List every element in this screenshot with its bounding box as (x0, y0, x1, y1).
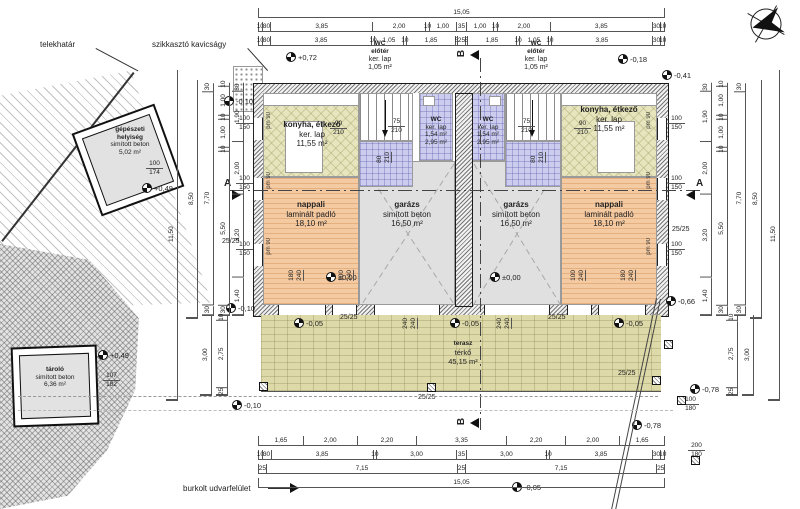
level-marker: -0,05 (614, 318, 643, 328)
door-label-tarolo: 107182 (103, 372, 120, 388)
dim-segment: 10 (660, 22, 664, 32)
dim-segment: 1,65 (258, 436, 303, 446)
dim-segment: 2,75 (726, 321, 738, 388)
level-marker: -0,78 (632, 420, 661, 430)
dim-segment: 15,05 (258, 8, 664, 18)
window-sill-label: pm 90 (266, 112, 272, 129)
kitchen-counter-left (263, 93, 359, 106)
wc-fixture-right (489, 96, 501, 106)
dim-chain-left-inner: 301,902,003,201,40 (232, 83, 244, 316)
dim-segment: 1,90 (700, 92, 712, 142)
window-opening (253, 178, 263, 200)
door-size-label: 75210 (518, 118, 535, 134)
dim-segment: 3,85 (550, 22, 652, 32)
dim-segment: 1,40 (700, 278, 712, 315)
dim-chain-bottom-total: 15,05 (258, 478, 665, 488)
dim-chain-left-mid: 101,00101,00105,5030 (218, 83, 230, 316)
dim-chain-right-inner: 301,902,003,201,40 (700, 83, 712, 316)
label-burkolt-udvarfelulet: burkolt udvarfelület (183, 484, 251, 493)
level-symbol-icon (142, 183, 152, 193)
dim-segment: 3,85 (551, 36, 652, 46)
leader-line (268, 488, 290, 489)
dim-segment: 3,85 (270, 36, 371, 46)
dim-segment: 30 (202, 83, 214, 92)
dim-segment: 3,00 (466, 450, 546, 460)
dim-segment: 1,00 (429, 22, 456, 32)
hall-right (505, 141, 561, 187)
window-size-label: 100150 (668, 175, 685, 191)
dim-chain-left-850: 8,50 (186, 80, 198, 319)
dim-segment: 3,85 (270, 22, 372, 32)
door-label-gepeszeti: 100174 (146, 160, 163, 176)
dim-segment: 11,50 (166, 70, 178, 400)
level-marker: -0,66 (666, 296, 695, 306)
section-line-b (480, 58, 481, 430)
section-arrow-icon (470, 418, 479, 428)
terrace-post (259, 382, 268, 391)
garage-rear-opening (484, 305, 550, 315)
fence-post (691, 456, 700, 465)
level-marker: -0,41 (662, 70, 691, 80)
dim-chain-left-1150: 11,50 (166, 70, 178, 401)
dim-segment: 8,50 (750, 80, 762, 318)
dim-chain-right-1150: 11,50 (768, 70, 780, 401)
door-size-label: 90210 (574, 120, 591, 136)
level-symbol-icon (98, 350, 108, 360)
room-label-wc-right: WCker. lap 1,54 m²2,95 m² (471, 116, 505, 146)
fence-post (664, 340, 673, 349)
window-size-label: 100150 (668, 241, 685, 257)
dim-chain-top-row2: 10303,852,00101,00351,00102,003,853010 (258, 22, 665, 32)
terrace-door-label: 100240 (338, 270, 354, 281)
dim-chain-right-770: 307,7030 (734, 83, 746, 316)
floor-plan-sheet: OC OTTHON CENTRUM gépészetihelyiség simí… (0, 0, 800, 509)
room-label-nappali-right: nappalilaminált padló18,10 m² (564, 200, 654, 229)
window-opening (253, 244, 263, 266)
section-marker-b-bottom: B (456, 418, 467, 425)
dim-segment: 3,00 (742, 315, 754, 395)
door-size-label: 75210 (388, 118, 405, 134)
terrace-post (427, 383, 436, 392)
dim-segment: 3,00 (376, 450, 456, 460)
dim-chain-bottom-row1: 1,652,002,203,352,202,001,65 (258, 436, 665, 446)
dim-segment: 30 (202, 306, 214, 315)
dim-segment: 10 (216, 315, 228, 321)
dim-segment: 2,00 (232, 142, 244, 195)
level-symbol-icon (662, 70, 672, 80)
column-size-label: 25/25 (548, 314, 566, 321)
window-size-label: 100150 (668, 115, 685, 131)
leader-line (96, 48, 139, 71)
dim-segment: 7,70 (202, 92, 214, 305)
garage-rear-opening (374, 305, 440, 315)
dim-chain-bottom-row2: 10303,85103,00353,00103,853010 (258, 450, 665, 460)
dim-segment: 1,00 (716, 87, 728, 116)
garage-door-label: 240240 (402, 318, 418, 329)
dim-segment: 10 (660, 36, 664, 46)
terrace-door-label: 100240 (570, 270, 586, 281)
dim-segment: 35 (456, 22, 466, 32)
dim-segment: 7,15 (266, 464, 458, 474)
living-room-left (263, 177, 359, 305)
dim-segment: 3,85 (549, 450, 651, 460)
dim-chain-top-row3: 10303,85101,05101,8552551,85101,05103,85… (258, 36, 665, 46)
window-sill-label: pm 90 (266, 238, 272, 255)
dim-segment: 2,20 (357, 436, 416, 446)
level-marker: -0,78 (690, 384, 719, 394)
fence-post (677, 396, 686, 405)
dim-segment: 1,05 (374, 36, 402, 46)
level-marker: +0,72 (286, 52, 317, 62)
dim-chain-top-total: 15,05 (258, 8, 665, 18)
dim-segment: 3,20 (232, 194, 244, 278)
dim-segment: 1,65 (619, 436, 664, 446)
level-marker: -0,18 (618, 54, 647, 64)
dim-chain-left-bottom-inner: 102,7525 (216, 315, 228, 396)
section-arrow-icon (470, 50, 479, 60)
window-opening (657, 178, 667, 200)
window-opening (253, 118, 263, 140)
level-symbol-icon (294, 318, 304, 328)
level-symbol-icon (690, 384, 700, 394)
level-marker: ±0,00 (490, 272, 521, 282)
column-size-label: 25/25 (618, 370, 636, 377)
room-label-garazs-left: garázssimított beton16,50 m² (362, 200, 452, 229)
door-size-label: 80210 (530, 152, 546, 163)
hall-left (359, 141, 413, 187)
dim-segment: 7,70 (734, 92, 746, 305)
room-label-garazs-right: garázssimított beton16,50 m² (472, 200, 560, 229)
dim-segment: 2,00 (372, 22, 425, 32)
dim-segment: 3,35 (416, 436, 506, 446)
dim-segment: 3,00 (200, 315, 212, 395)
dim-segment: 25 (457, 464, 465, 474)
wc-fixture-left (423, 96, 435, 106)
level-marker: -0,05 (294, 318, 323, 328)
door-size-label: 80210 (376, 152, 392, 163)
yard-dashed-line (18, 396, 658, 397)
dim-segment: 30 (734, 83, 746, 92)
dim-segment: 30 (700, 83, 712, 92)
dim-segment: 30 (734, 306, 746, 315)
dim-segment: 3,85 (271, 450, 373, 460)
column-size-label: 25/25 (340, 314, 358, 321)
dim-segment: 15,05 (258, 478, 664, 488)
garage-door-label: 240240 (496, 318, 512, 329)
room-label-nappali-left: nappalilaminált padló18,10 m² (266, 200, 356, 229)
label-telekhatar: telekhatár (40, 40, 75, 49)
level-symbol-icon (490, 272, 500, 282)
dim-chain-right-850: 8,50 (750, 80, 762, 319)
dim-segment: 1,40 (232, 278, 244, 315)
dim-segment: 2,00 (497, 22, 550, 32)
room-label-wc-left: WCker. lap 1,54 m²2,95 m² (419, 116, 453, 146)
dim-segment: 2,00 (303, 436, 357, 446)
dim-segment: 1,85 (467, 36, 516, 46)
level-symbol-icon (232, 400, 242, 410)
dim-segment: 25 (258, 464, 266, 474)
window-opening (657, 118, 667, 140)
dim-segment: 11,50 (768, 70, 780, 400)
dim-segment: 10 (726, 315, 738, 321)
window-sill-label: pm 90 (266, 172, 272, 189)
dim-segment: 1,00 (466, 22, 493, 32)
dim-segment: 2,00 (700, 142, 712, 195)
dim-segment: 10 (660, 450, 664, 460)
dim-segment: 3,20 (700, 194, 712, 278)
dim-segment: 25 (656, 464, 664, 474)
living-room-right (561, 177, 657, 305)
yard-dashed-line (18, 410, 673, 411)
dim-segment: 30 (262, 450, 271, 460)
dim-segment: 25 (726, 388, 738, 395)
window-sill-label: pm 90 (646, 172, 652, 189)
section-arrow-icon (686, 190, 695, 200)
dim-segment: 1,90 (232, 92, 244, 142)
dim-chain-left-770: 307,7030 (202, 83, 214, 316)
dim-segment: 1,00 (218, 87, 230, 116)
dim-segment: 1,00 (716, 119, 728, 148)
level-marker: +0,49 (98, 350, 129, 360)
level-symbol-icon (286, 52, 296, 62)
section-marker-b-top: B (456, 50, 467, 57)
terrace-post (652, 376, 661, 385)
dim-segment: 2,00 (565, 436, 619, 446)
dim-segment: 25 (216, 388, 228, 395)
dim-segment: 1,05 (519, 36, 547, 46)
dim-segment: 2,20 (506, 436, 565, 446)
window-sill-label: pm 90 (646, 238, 652, 255)
level-symbol-icon (614, 318, 624, 328)
dim-segment: 35 (456, 450, 466, 460)
dim-segment: 7,15 (465, 464, 657, 474)
level-symbol-icon (450, 318, 460, 328)
level-marker: -0,05 (450, 318, 479, 328)
door-size-label: 90210 (330, 120, 347, 136)
level-marker: -0,10 (232, 400, 261, 410)
dim-chain-right-bottom-outer: 3,00 (742, 315, 754, 396)
level-symbol-icon (618, 54, 628, 64)
dim-chain-bottom-row3: 257,15257,1525 (258, 464, 665, 474)
label-szikkaszto: szikkasztó kavicságy (152, 40, 226, 49)
dim-chain-right-bottom-inner: 102,7525 (726, 315, 738, 396)
column-size-label: 25/25 (672, 226, 690, 233)
terrace-door-label: 180240 (620, 270, 636, 281)
dim-segment: 5,50 (716, 152, 728, 306)
dim-chain-right-mid: 101,00101,00105,5030 (716, 83, 728, 316)
north-arrow-icon (739, 0, 793, 51)
dim-segment: 30 (716, 306, 728, 315)
dim-chain-left-bottom-outer: 3,00 (200, 315, 212, 396)
level-symbol-icon (326, 272, 336, 282)
terrace-door-opening (598, 305, 646, 315)
dim-segment: 1,00 (218, 119, 230, 148)
dim-segment: 5,50 (218, 152, 230, 306)
dim-segment: 8,50 (186, 80, 198, 318)
room-label-terasz: terasztérkő45,15 m² (418, 338, 508, 366)
terrace-door-opening (567, 305, 592, 315)
dim-segment: 2,75 (216, 321, 228, 388)
stair-arrow (385, 100, 386, 132)
section-line-a (230, 190, 700, 191)
room-label-tarolo: tároló simított beton6,36 m² (18, 366, 92, 389)
dim-segment: 30 (262, 22, 271, 32)
level-symbol-icon (666, 296, 676, 306)
terrace-door-label: 180240 (288, 270, 304, 281)
room-label-gepeszeti: gépészetihelyiség simított beton5,02 m² (92, 126, 168, 156)
dim-segment: 30 (262, 36, 271, 46)
dim-segment: 30 (232, 83, 244, 92)
terrace-door-opening (278, 305, 326, 315)
window-opening (657, 244, 667, 266)
window-sill-label: pm 90 (646, 112, 652, 129)
dim-segment: 1,85 (406, 36, 455, 46)
